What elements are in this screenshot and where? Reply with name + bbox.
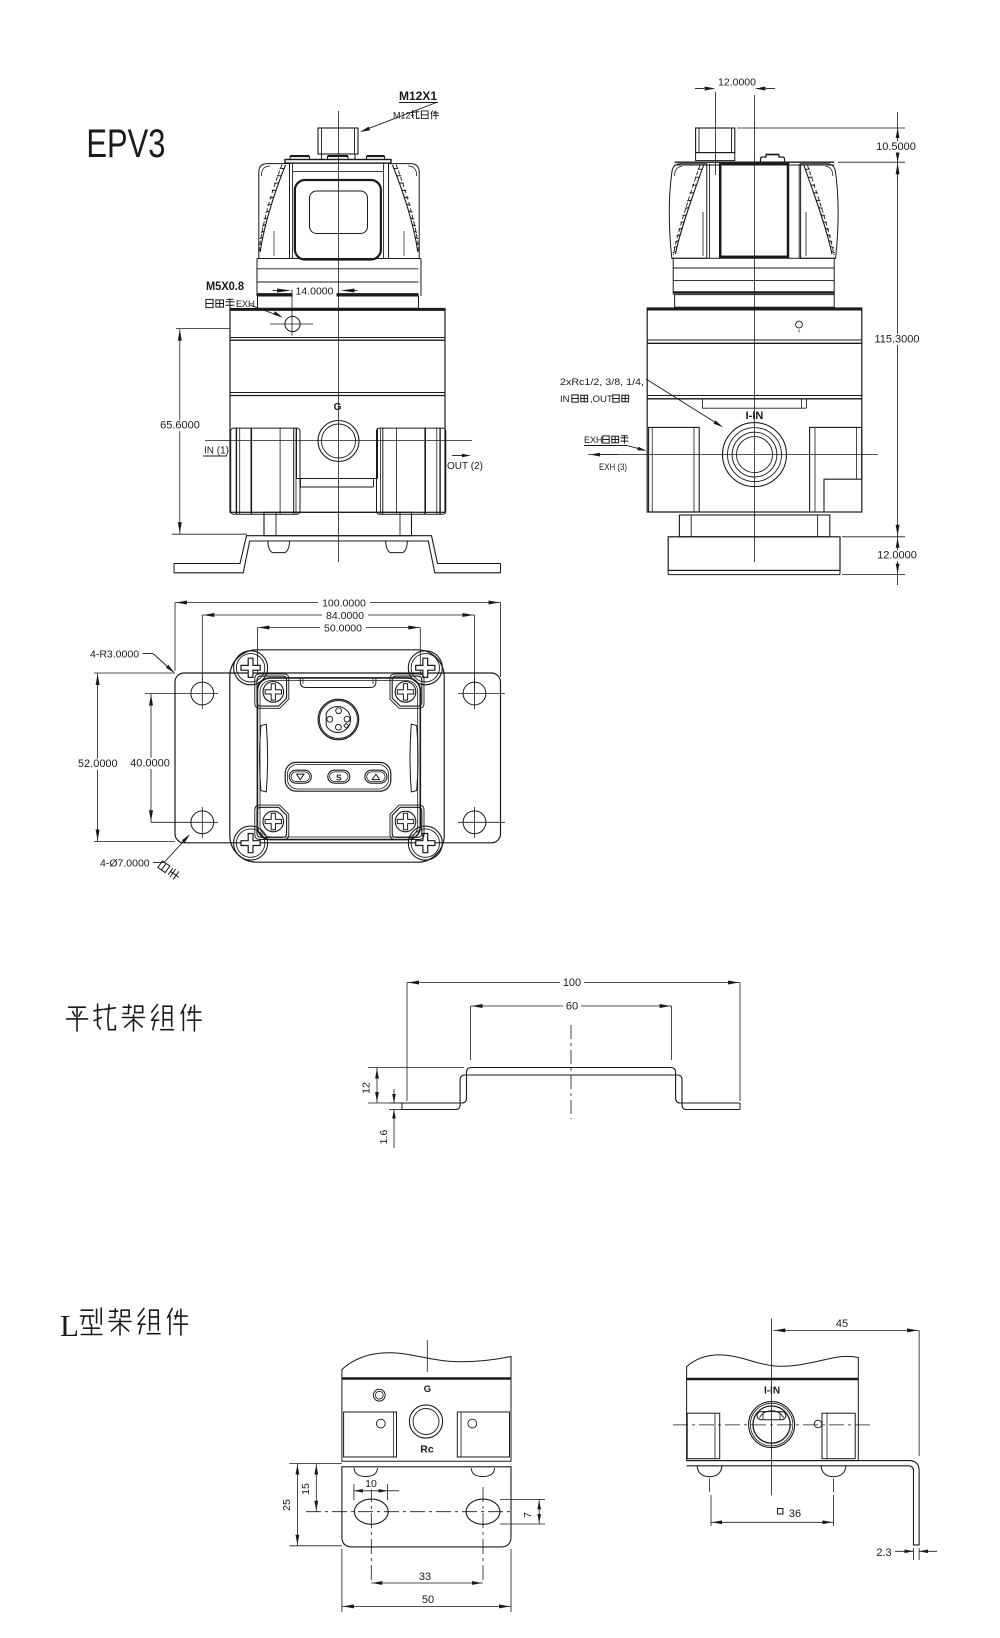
svg-text:S: S — [336, 772, 342, 782]
svg-text:OUT (2): OUT (2) — [447, 461, 483, 472]
svg-text:25: 25 — [281, 1499, 293, 1511]
svg-text:4-R3.0000: 4-R3.0000 — [90, 649, 139, 661]
svg-text:2xRc1/2, 3/8, 1/4,: 2xRc1/2, 3/8, 1/4, — [560, 377, 644, 388]
svg-text:EXH: EXH — [236, 299, 255, 309]
svg-text:12: 12 — [361, 1082, 373, 1094]
svg-text:45: 45 — [836, 1318, 848, 1330]
svg-text:L: L — [60, 1308, 79, 1343]
svg-text:100: 100 — [563, 977, 581, 989]
svg-text:7: 7 — [522, 1512, 534, 1518]
svg-text:G: G — [424, 1384, 431, 1395]
svg-text:IN: IN — [560, 394, 570, 405]
svg-text:15: 15 — [300, 1483, 312, 1495]
svg-text:14.0000: 14.0000 — [296, 286, 334, 298]
svg-text:40.0000: 40.0000 — [130, 758, 170, 770]
svg-text:EPV3: EPV3 — [86, 122, 165, 166]
svg-text:10: 10 — [365, 1478, 377, 1490]
svg-text:50: 50 — [422, 1594, 434, 1606]
svg-text:60: 60 — [566, 1001, 578, 1013]
svg-text:50.0000: 50.0000 — [324, 623, 362, 635]
svg-text:I-IN: I-IN — [764, 1386, 780, 1397]
svg-text:I-IN: I-IN — [746, 410, 764, 422]
svg-text:G: G — [334, 402, 342, 413]
svg-text:65.6000: 65.6000 — [160, 420, 200, 432]
svg-text:IN (1): IN (1) — [204, 446, 229, 457]
svg-text:12.0000: 12.0000 — [877, 550, 917, 562]
svg-text:12.0000: 12.0000 — [718, 77, 756, 89]
svg-text:M12X1: M12X1 — [399, 91, 438, 103]
svg-text:,OUT: ,OUT — [590, 394, 613, 405]
svg-text:52.0000: 52.0000 — [78, 758, 118, 770]
svg-text:M12: M12 — [393, 111, 411, 121]
svg-text:10.5000: 10.5000 — [876, 141, 916, 153]
svg-text:36: 36 — [789, 1508, 801, 1520]
svg-text:4-Ø7.0000: 4-Ø7.0000 — [100, 858, 150, 870]
svg-text:33: 33 — [419, 1571, 431, 1583]
svg-text:100.0000: 100.0000 — [322, 598, 366, 610]
svg-text:1.6: 1.6 — [378, 1130, 390, 1145]
svg-text:2.3: 2.3 — [876, 1547, 891, 1559]
svg-text:84.0000: 84.0000 — [326, 610, 364, 622]
svg-text:115.3000: 115.3000 — [874, 334, 919, 346]
svg-text:EXH: EXH — [584, 435, 603, 445]
svg-text:M5X0.8: M5X0.8 — [206, 281, 245, 293]
svg-text:EXH (3): EXH (3) — [599, 462, 627, 473]
svg-text:Rc: Rc — [420, 1444, 434, 1456]
